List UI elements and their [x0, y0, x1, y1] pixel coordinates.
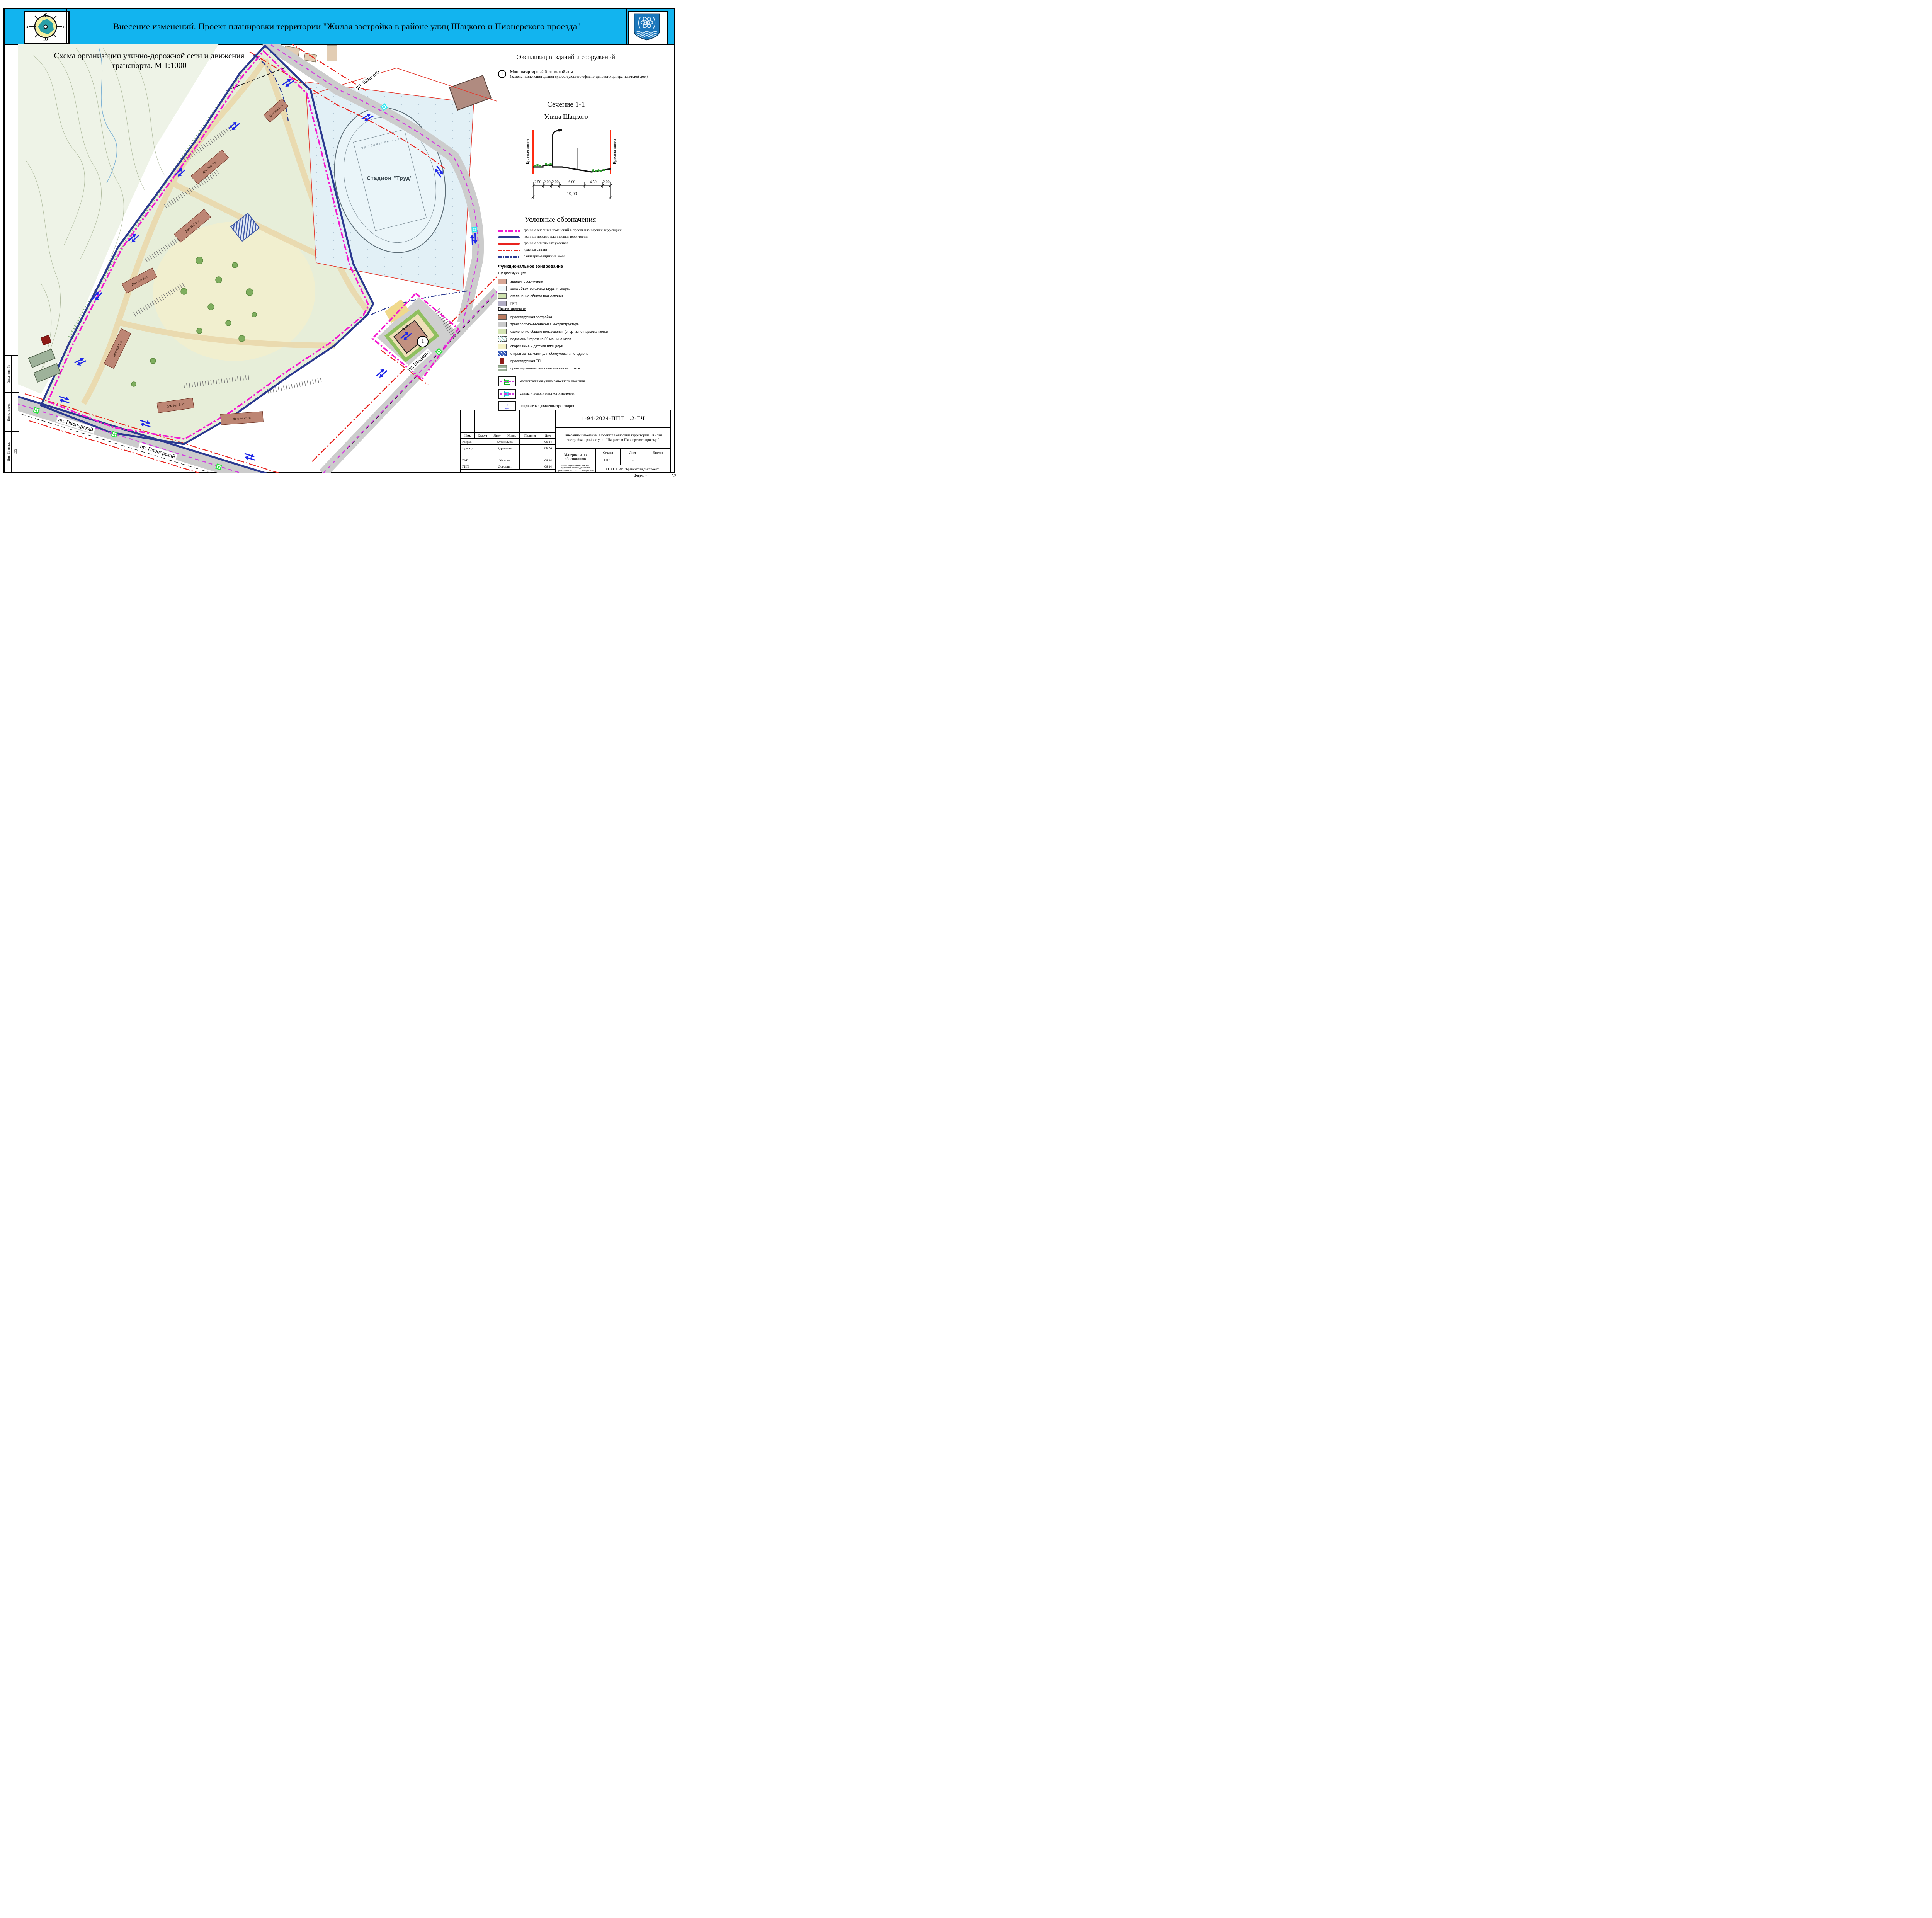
- stamp-col-data: Дата: [541, 433, 556, 439]
- legend-road-item: улицы и дороги местного значения: [498, 389, 668, 399]
- compass-south: Ю: [43, 37, 48, 41]
- legend-zone-item: ГРП: [498, 300, 668, 307]
- stamp-row-date: [541, 451, 556, 457]
- dimension-total: 19,00: [567, 192, 577, 196]
- stamp-col-koluch: Кол.уч: [475, 433, 490, 439]
- legend-zone-item: открытые парковки для обслуживания стади…: [498, 350, 668, 357]
- legend-zone-label: проектируемые очистные ливневых стоков: [510, 366, 580, 370]
- legend-zone-item: озеленение общего пользования (спортивно…: [498, 328, 668, 335]
- legend-road-label: направление движения транспорта: [520, 404, 574, 408]
- legend-zone-item: зона объектов физкультуры и спорта: [498, 285, 668, 292]
- page-title: Внесение изменений. Проект планировки те…: [70, 9, 624, 44]
- map-title-line2: транспорта. М 1:1000: [41, 61, 257, 70]
- map-title: Схема организации улично-дорожной сети и…: [41, 51, 257, 70]
- section-title: Сечение 1-1: [512, 100, 620, 109]
- legend-zone-label: озеленение общего пользования: [510, 294, 564, 298]
- legend-zone-label: проектируемая ТП: [510, 359, 541, 363]
- legend-zone-swatch: [498, 314, 507, 320]
- stamp-empty-cell: [490, 422, 504, 427]
- stamp-col-list: Лист: [490, 433, 504, 439]
- format-value: А2: [671, 474, 676, 478]
- stamp-empty-cell: [490, 416, 504, 422]
- legend-zone-item: транспортно-инженерная инфраструктура: [498, 320, 668, 328]
- strip-label-inv: Инв. № подл.: [7, 442, 10, 461]
- legend-line-item: красные линии: [498, 247, 668, 254]
- stamp-row-name: Столицына: [490, 439, 520, 445]
- svg-text:4,50: 4,50: [590, 180, 597, 184]
- legend-zone-item: проектируемые очистные ливневых стоков: [498, 364, 668, 372]
- stamp-empty-cell: [504, 416, 520, 422]
- explication-title: Экспликация зданий и сооружений: [497, 53, 636, 61]
- compass-west: З: [26, 25, 28, 29]
- legend-zone-label: проектируемая застройка: [510, 315, 552, 319]
- stamp-stage-value: ППТ: [596, 456, 621, 465]
- zoning-title: Функциональное зонирование: [498, 264, 563, 269]
- strip-box-vzam: Взам. инв. №: [5, 355, 19, 393]
- strip-label-cell: Взам. инв. №: [5, 356, 12, 393]
- stamp-row-name: Курочкина: [490, 445, 520, 451]
- strip-label-vzam: Взам. инв. №: [7, 365, 10, 383]
- legend-line-item: граница земельных участков: [498, 240, 668, 247]
- legend-zone-item: проектируемая ТП: [498, 357, 668, 364]
- legend-zone-swatch: [498, 344, 507, 349]
- stamp-row-sign: [520, 463, 541, 470]
- red-line-label-left: Красная линия: [526, 139, 530, 164]
- stamp-row-date: 06.24: [541, 457, 556, 463]
- stamp-row-role: Провер.: [461, 445, 490, 451]
- legend-line-label: граница земельных участков: [524, 242, 568, 246]
- strip-label-cell: Подп. и дата: [5, 393, 12, 432]
- inventory-number: 635: [14, 449, 17, 454]
- legend-zone-label: подземный гараж на 50 машино-мест: [510, 337, 571, 341]
- side-strip: Взам. инв. № Подп. и дата Инв. № подл. 6…: [5, 355, 18, 471]
- stamp-row-role: Разраб.: [461, 439, 490, 445]
- svg-text:2,50: 2,50: [534, 180, 541, 184]
- legend-zone-label: зона объектов физкультуры и спорта: [510, 287, 570, 291]
- stamp-col-izm: Изм.: [461, 433, 475, 439]
- stamp-row-role: ГИП: [461, 463, 490, 470]
- stamp-sheets-value: [645, 456, 671, 465]
- stamp-materials: Материалы по обоснованию: [556, 449, 596, 465]
- right-panel: Экспликация зданий и сооружений 1 Многок…: [497, 44, 675, 410]
- svg-text:2,00: 2,00: [552, 180, 559, 184]
- existing-title: Существующее: [498, 271, 526, 276]
- stamp-row: ГАП Коршук 06.24: [461, 457, 556, 463]
- stamp-row-sign: [520, 457, 541, 463]
- stamp-empty-cell: [490, 410, 504, 416]
- legend-zone-item: спортивные и детские площадки: [498, 342, 668, 350]
- legend-line-symbol: [498, 247, 520, 254]
- stamp-row-sign: [520, 445, 541, 451]
- compass-icon: С Ю З В: [25, 12, 66, 41]
- format-line: Формат А2: [634, 474, 676, 478]
- stamp-row-date: 06.24: [541, 439, 556, 445]
- stamp-empty-cell: [461, 422, 475, 427]
- svg-text:2,00: 2,00: [603, 180, 610, 184]
- stamp-sheet-label: Лист: [621, 449, 645, 456]
- stamp-empty-cell: [520, 427, 541, 433]
- stamp-empty-cell: [461, 416, 475, 422]
- stamp-empty-cell: [541, 416, 556, 422]
- stamp-empty-cell: [475, 416, 490, 422]
- legend-title: Условные обозначения: [497, 216, 624, 224]
- section-subtitle: Улица Шацкого: [512, 113, 620, 121]
- legend-road-symbol: [498, 389, 516, 399]
- legend-proposed-items: проектируемая застройка транспортно-инже…: [498, 313, 668, 372]
- stamp-drawing-name: Схема организации улично-дорожной сети и…: [556, 465, 596, 473]
- legend-line-symbol: [498, 254, 520, 260]
- stamp-row-name: Коршук: [490, 457, 520, 463]
- header-separator-right: [626, 9, 627, 44]
- street-cross-section: Красная линия Красная линия: [516, 127, 628, 212]
- legend-line-label: граница проекта планировки территории: [524, 235, 588, 239]
- legend-road-symbol: [498, 376, 516, 386]
- map-canvas: [18, 44, 497, 473]
- legend-line-label: санитарно-защитные зоны: [524, 255, 565, 259]
- stamp-empty-cell: [475, 410, 490, 416]
- stamp-sheets-label: Листов: [645, 449, 671, 456]
- legend-zone-item: здания, сооружения: [498, 277, 668, 285]
- legend-zone-swatch: [498, 301, 507, 306]
- legend-zone-label: озеленение общего пользования (спортивно…: [510, 330, 608, 334]
- stamp-row-name: [490, 451, 520, 457]
- stamp-stage-label: Стадия: [596, 449, 621, 456]
- stamp-sheet-value: 4: [621, 456, 645, 465]
- stamp-empty-cell: [504, 422, 520, 427]
- legend-zone-label: ГРП: [510, 301, 517, 305]
- legend-zone-swatch: [498, 329, 507, 334]
- stamp-empty-cell: [541, 410, 556, 416]
- legend-road-item: магистральная улица районного значения: [498, 376, 668, 386]
- legend-zone-swatch: [498, 322, 507, 327]
- stamp-row-sign: [520, 451, 541, 457]
- stamp-empty-cell: [461, 410, 475, 416]
- header-separator-left: [66, 9, 67, 44]
- strip-label-cell: Инв. № подл.: [5, 432, 12, 472]
- legend-zone-swatch: [498, 279, 507, 284]
- legend-zone-item: подземный гараж на 50 машино-мест: [498, 335, 668, 342]
- stamp-col-podpis: Подпись: [520, 433, 541, 439]
- stamp-project-name: Внесение изменений. Проект планировки те…: [556, 428, 671, 449]
- street-lamp-icon: [553, 129, 562, 167]
- proposed-title: Проектируемое: [498, 307, 526, 311]
- legend-zone-label: здания, сооружения: [510, 279, 543, 283]
- legend-existing-items: здания, сооружения зона объектов физкуль…: [498, 277, 668, 307]
- stamp-empty-cell: [461, 427, 475, 433]
- stamp-empty-cell: [520, 416, 541, 422]
- stamp-company: ООО "ПИИ "Брянскгражданпроект": [596, 465, 671, 473]
- strip-label-podp: Подп. и дата: [7, 403, 10, 421]
- legend-zone-swatch: [498, 365, 507, 371]
- stamp-empty-cell: [490, 427, 504, 433]
- stamp-empty-cell: [541, 422, 556, 427]
- legend-line-items: граница внесения изменений в проект план…: [498, 227, 668, 260]
- strip-box-inv: Инв. № подл. 635: [5, 431, 19, 473]
- legend-line-symbol: [498, 234, 520, 240]
- explication-item: 1 Многоквартирный 6 эт. жилой дом (замен…: [498, 70, 668, 79]
- stamp-row: Разраб. Столицына 06.24: [461, 439, 556, 445]
- legend-line-symbol: [498, 228, 520, 234]
- drawing-sheet: С Ю З В Внесение изменений. Проект плани…: [0, 0, 678, 480]
- stamp-row: [461, 451, 556, 457]
- stamp-signature-rows: Разраб. Столицына 06.24 Провер. Курочкин…: [461, 439, 556, 470]
- legend-zone-swatch: [498, 336, 507, 342]
- stamp-empty-cell: [504, 410, 520, 416]
- legend-road-label: магистральная улица районного значения: [520, 380, 585, 384]
- stamp-row: ГИП Дорошин 06.24: [461, 463, 556, 470]
- dimension-values: 2,50 2,00 2,00 6,00 4,50 2,00 19,00: [534, 180, 610, 196]
- legend-zone-label: спортивные и детские площадки: [510, 344, 563, 348]
- changed-parcel: [372, 293, 458, 385]
- legend-line-item: санитарно-защитные зоны: [498, 254, 668, 260]
- legend-line-item: граница внесения изменений в проект план…: [498, 227, 668, 234]
- stamp-empty-cell: [475, 427, 490, 433]
- map-area: ул. Шацкого ул. Шацкого пр. Пионерский п…: [18, 44, 497, 473]
- explication-item-number: 1: [498, 70, 506, 78]
- stamp-empty-cell: [475, 422, 490, 427]
- compass-east: В: [63, 25, 65, 29]
- stamp-row-date: 06.24: [541, 445, 556, 451]
- stamp-empty-cell: [504, 427, 520, 433]
- legend-line-label: граница внесения изменений в проект план…: [524, 228, 622, 233]
- legend-line-symbol: [498, 241, 520, 247]
- legend-road-items: магистральная улица районного значения у…: [498, 376, 668, 411]
- legend-zone-swatch: [498, 286, 507, 291]
- stamp-row-role: [461, 451, 490, 457]
- stamp-empty-cell: [541, 427, 556, 433]
- logo-box: [628, 11, 668, 45]
- stamp-row-date: 06.24: [541, 463, 556, 470]
- legend-zone-label: открытые парковки для обслуживания стади…: [510, 352, 588, 356]
- format-label: Формат: [634, 474, 647, 478]
- legend-zone-item: проектируемая застройка: [498, 313, 668, 320]
- title-block: Изм. Кол.уч Лист N док. Подпись Дата Раз…: [460, 410, 671, 473]
- compass-north: С: [44, 12, 47, 17]
- legend-zone-item: озеленение общего пользования: [498, 292, 668, 300]
- header-band: С Ю З В Внесение изменений. Проект плани…: [5, 9, 674, 45]
- legend-road-label: улицы и дороги местного значения: [520, 392, 575, 396]
- stamp-row-name: Дорошин: [490, 463, 520, 470]
- legend-zone-swatch: [500, 358, 504, 364]
- stamp-row-sign: [520, 439, 541, 445]
- stamp-doc-number: 1-94-2024-ППТ 1.2-ГЧ: [556, 410, 671, 428]
- explication-item-name: Многоквартирный 6 эт. жилой дом: [510, 70, 648, 75]
- stamp-empty-cell: [461, 470, 556, 473]
- legend-zone-swatch: [498, 293, 507, 299]
- svg-text:6,00: 6,00: [568, 180, 575, 184]
- explication-item-note: (замена назначения здания существующего …: [510, 75, 648, 79]
- city-emblem-icon: [629, 12, 665, 41]
- stamp-col-ndok: N док.: [504, 433, 520, 439]
- map-title-line1: Схема организации улично-дорожной сети и…: [41, 51, 257, 61]
- legend-line-item: граница проекта планировки территории: [498, 234, 668, 240]
- legend-zone-swatch: [498, 351, 507, 356]
- compass-box: С Ю З В: [24, 11, 70, 44]
- stamp-row-role: ГАП: [461, 457, 490, 463]
- legend-zone-label: транспортно-инженерная инфраструктура: [510, 322, 579, 326]
- stamp-empty-cell: [520, 422, 541, 427]
- red-line-label-right: Красная линия: [612, 139, 617, 164]
- svg-text:2,00: 2,00: [544, 180, 551, 184]
- stamp-empty-cell: [520, 410, 541, 416]
- stamp-row: Провер. Курочкина 06.24: [461, 445, 556, 451]
- strip-box-podp: Подп. и дата: [5, 392, 19, 432]
- legend-line-label: красные линии: [524, 248, 547, 252]
